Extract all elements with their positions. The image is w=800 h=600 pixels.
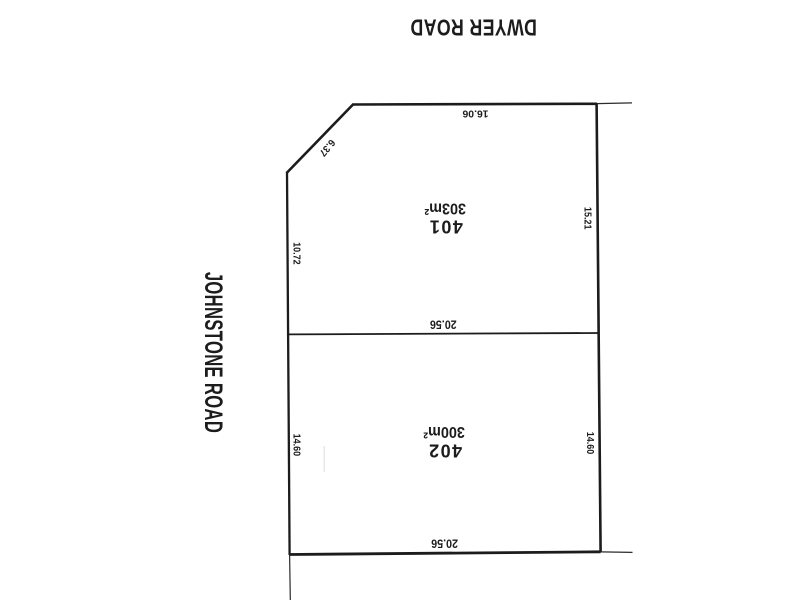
- svg-text:14.60: 14.60: [585, 432, 596, 455]
- svg-text:15.21: 15.21: [582, 207, 593, 230]
- svg-text:10.72: 10.72: [291, 242, 302, 265]
- svg-text:401: 401: [428, 217, 463, 237]
- svg-text:14.60: 14.60: [291, 434, 302, 457]
- svg-text:20.56: 20.56: [431, 536, 458, 548]
- svg-text:16.06: 16.06: [462, 108, 488, 119]
- svg-text:JOHNSTONE ROAD: JOHNSTONE ROAD: [199, 272, 226, 433]
- svg-text:303m²: 303m²: [424, 199, 466, 217]
- svg-text:20.56: 20.56: [430, 317, 457, 329]
- svg-text:300m²: 300m²: [423, 423, 465, 441]
- svg-text:402: 402: [428, 441, 463, 461]
- svg-text:DWYER ROAD: DWYER ROAD: [410, 14, 537, 40]
